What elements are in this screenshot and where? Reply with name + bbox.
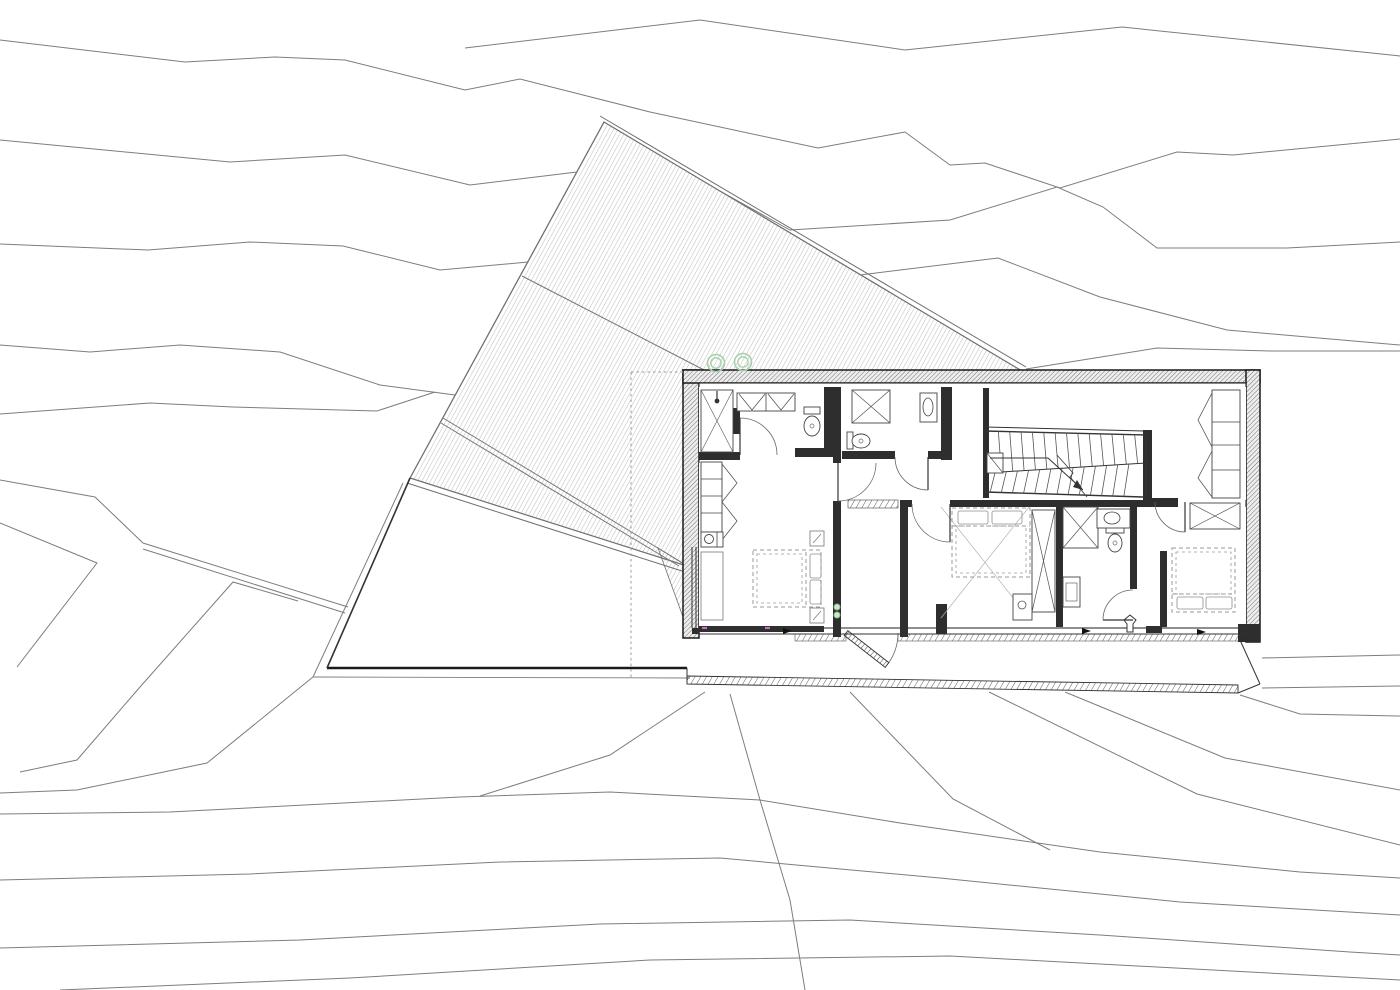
sliding-door-threshold bbox=[848, 500, 898, 508]
contour-11 bbox=[20, 582, 298, 772]
contour-18 bbox=[480, 692, 705, 796]
contour-16 bbox=[60, 956, 1400, 990]
wall-east bbox=[1246, 370, 1260, 642]
closet-bath-2 bbox=[852, 390, 890, 423]
contour-03 bbox=[0, 140, 577, 185]
closet-right-bedroom bbox=[1190, 503, 1240, 529]
contour-17 bbox=[730, 694, 805, 990]
contour-08 bbox=[1026, 348, 1400, 369]
closet-bath-3 bbox=[1063, 507, 1098, 548]
room-hall bbox=[841, 455, 900, 627]
contour-21 bbox=[1065, 692, 1400, 790]
contour-24 bbox=[1240, 695, 1400, 716]
contour-14 bbox=[0, 858, 1400, 915]
contour-13 bbox=[0, 792, 1400, 878]
contour-12 bbox=[0, 677, 313, 793]
contour-05 bbox=[0, 242, 528, 270]
site-walkway bbox=[0, 480, 348, 613]
contour-22 bbox=[1262, 655, 1400, 658]
service-point-marker bbox=[834, 604, 840, 610]
contour-07 bbox=[0, 345, 455, 395]
wall-north bbox=[683, 370, 1260, 383]
sink-bath-2 bbox=[920, 393, 937, 422]
vanity-bath-3 bbox=[1063, 577, 1080, 607]
contour-15 bbox=[0, 920, 1400, 955]
contour-19 bbox=[850, 692, 1050, 850]
contour-10 bbox=[0, 523, 97, 667]
sink-bath-3 bbox=[1097, 509, 1130, 528]
contour-09 bbox=[0, 392, 435, 414]
shower bbox=[701, 390, 733, 452]
contour-04 bbox=[700, 180, 1400, 248]
wardrobe-tall bbox=[1032, 510, 1055, 612]
window-bench bbox=[701, 552, 723, 620]
wc-bath-1 bbox=[804, 407, 820, 436]
vanity-middle bbox=[1013, 594, 1032, 620]
floor-plan-svg bbox=[0, 0, 1400, 990]
service-point-marker bbox=[834, 612, 840, 618]
contour-02 bbox=[0, 40, 1400, 188]
contour-01 bbox=[465, 20, 1400, 56]
site-floor-plan-drawing bbox=[0, 0, 1400, 990]
contour-23 bbox=[1262, 686, 1400, 688]
wall-west bbox=[683, 370, 699, 638]
